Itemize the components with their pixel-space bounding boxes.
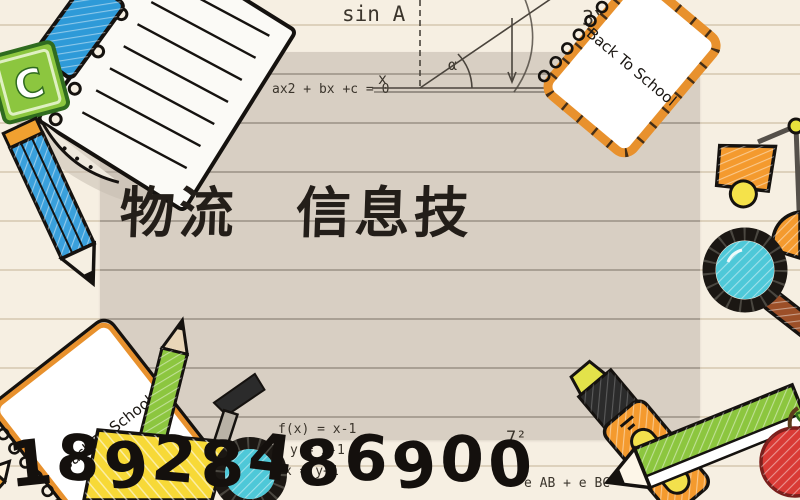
phone-digit: 8 xyxy=(54,425,102,491)
phone-digit: 4 xyxy=(245,423,296,491)
phone-number: 18928486900 xyxy=(8,428,532,494)
notebook-top-right-doodle: Back To School xyxy=(533,0,724,160)
phone-digit: 9 xyxy=(100,431,152,499)
phone-digit: 0 xyxy=(439,426,486,491)
back-to-school-poster: sin A 3X2 ax2 + bx +c = 0 x α f(x) = x-1… xyxy=(0,0,800,500)
title-part-left: 物流 xyxy=(119,168,240,248)
phone-digit: 0 xyxy=(486,431,535,498)
phone-digit: 2 xyxy=(150,426,199,493)
title-part-right: 信息技 xyxy=(295,168,475,248)
phone-digit: 9 xyxy=(389,431,440,499)
phone-digit: 8 xyxy=(294,430,343,497)
phone-digit: 1 xyxy=(5,429,55,496)
doodle-illustrations: C Back To School xyxy=(0,0,800,500)
phone-digit: 6 xyxy=(342,425,390,491)
phone-digit: 8 xyxy=(199,431,246,496)
page-title: 物流 信息技 xyxy=(119,168,475,248)
